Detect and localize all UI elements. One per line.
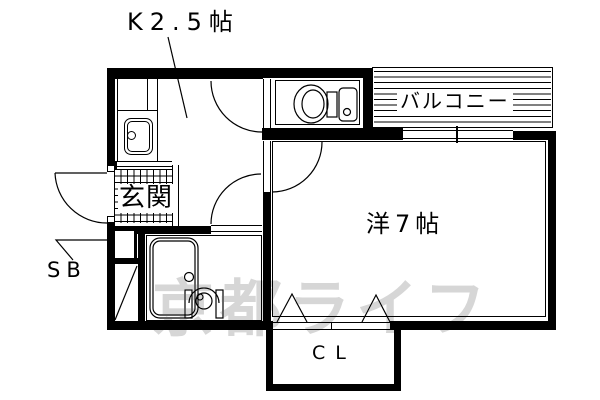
entrance-door-arc	[55, 173, 107, 223]
balcony-label: バルコニー	[397, 90, 513, 112]
washbasin-icon	[185, 288, 223, 318]
closet-door-triangle-right	[362, 295, 390, 322]
toilet-door-arc	[211, 81, 262, 132]
closet-door-triangle-left	[277, 294, 307, 322]
plan-linework	[0, 0, 600, 400]
shoebox-label-leader	[56, 240, 107, 260]
bathroom-door-arc	[211, 174, 261, 224]
room-label: 洋7帖	[366, 211, 444, 237]
kitchen-label: K2.5帖	[127, 9, 240, 35]
entrance-label: 玄関	[118, 184, 174, 213]
toilet-icon	[294, 85, 357, 123]
floor-plan: K2.5帖 バルコニー 玄関 洋7帖 SB CL 京都ライフ	[0, 0, 600, 400]
bathtub-icon	[150, 238, 198, 318]
kitchen-label-leader	[168, 37, 187, 118]
closet-label: CL	[312, 343, 356, 364]
shoebox-label: SB	[47, 259, 87, 282]
washer-space-diagonal	[115, 266, 137, 320]
room-door-arc	[272, 142, 322, 192]
